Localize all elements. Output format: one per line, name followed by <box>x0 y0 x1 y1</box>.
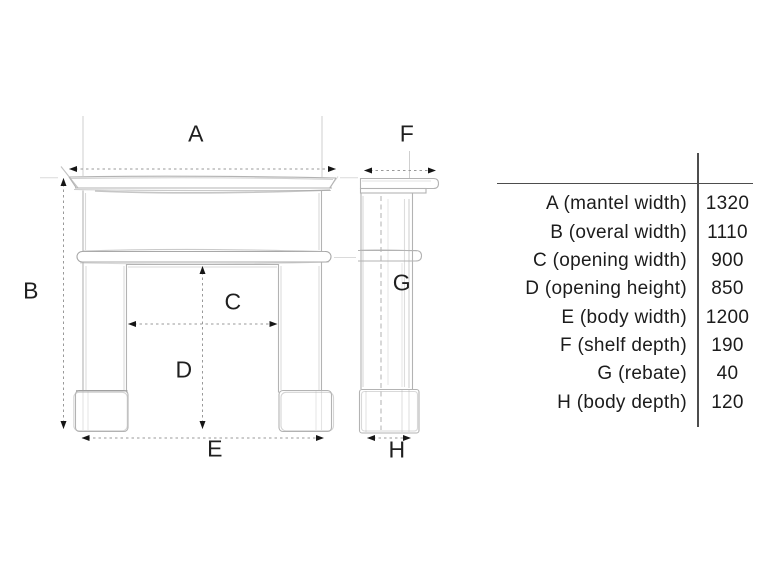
dim-label-g: G <box>393 272 411 295</box>
dimension-name: D (opening height) <box>480 278 687 300</box>
table-row: F (shelf depth) 190 <box>480 332 760 360</box>
dimension-name: G (rebate) <box>480 363 687 385</box>
table-row: H (body depth) 120 <box>480 388 760 416</box>
table-row: C (opening width) 900 <box>480 247 760 275</box>
table-row: A (mantel width) 1320 <box>480 190 760 218</box>
dimension-name: C (opening width) <box>480 250 687 272</box>
dim-label-e: E <box>207 438 223 461</box>
dimension-name: B (overal width) <box>480 222 687 244</box>
dimension-name: H (body depth) <box>480 392 687 414</box>
side-profile-view <box>358 179 439 434</box>
table-row: E (body width) 1200 <box>480 303 760 331</box>
dimension-lines <box>64 169 436 438</box>
table-row: D (opening height) 850 <box>480 275 760 303</box>
dimension-value: 1110 <box>699 222 756 244</box>
dimension-name: A (mantel width) <box>480 193 687 215</box>
dimension-value: 850 <box>699 278 756 300</box>
table-top-rule <box>497 183 753 185</box>
dimension-value: 40 <box>699 363 756 385</box>
table-row: G (rebate) 40 <box>480 360 760 388</box>
dim-label-b: B <box>23 280 39 303</box>
construction-guides <box>40 116 410 258</box>
dimension-name: F (shelf depth) <box>480 335 687 357</box>
dimension-value: 120 <box>699 392 756 414</box>
fireplace-dimensions-page: A B C D E F G H A (mantel width) 1320 B … <box>0 0 780 580</box>
dim-label-a: A <box>188 123 204 146</box>
dim-label-h: H <box>388 439 405 462</box>
dim-label-c: C <box>224 291 241 314</box>
front-elevation-view <box>61 167 338 432</box>
dim-label-d: D <box>175 359 192 382</box>
table-row: B (overal width) 1110 <box>480 218 760 246</box>
dimension-value: 1200 <box>699 307 756 329</box>
dimension-value: 1320 <box>699 193 756 215</box>
dim-label-f: F <box>400 123 415 146</box>
dimension-name: E (body width) <box>480 307 687 329</box>
dimensions-table: A (mantel width) 1320 B (overal width) 1… <box>480 190 760 417</box>
dimension-value: 900 <box>699 250 756 272</box>
dimension-value: 190 <box>699 335 756 357</box>
